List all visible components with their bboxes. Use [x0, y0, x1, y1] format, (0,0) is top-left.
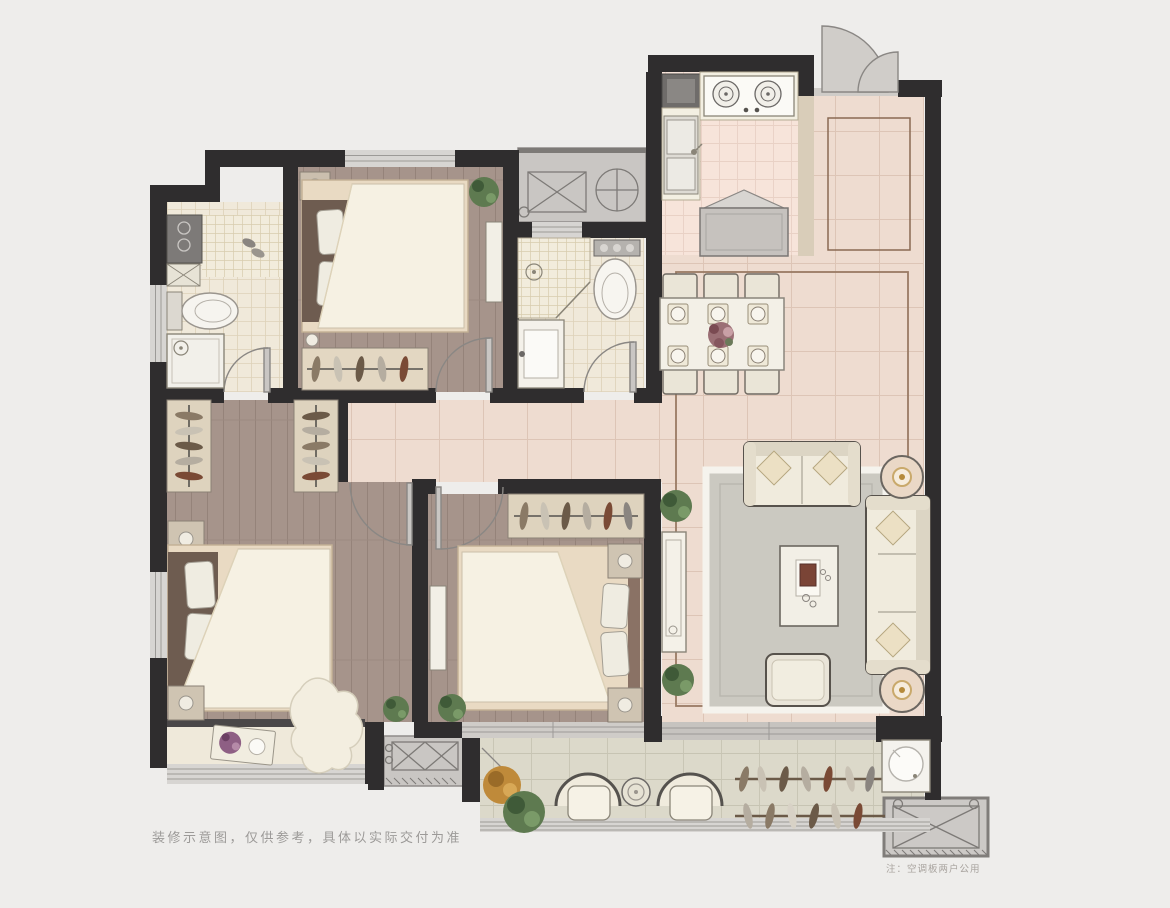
plant [503, 791, 545, 833]
wardrobe [167, 400, 211, 492]
ottoman [766, 654, 830, 706]
lamp-icon [306, 334, 318, 346]
bay-window-table [210, 725, 275, 765]
table-centerpiece-flowers [708, 322, 734, 348]
nightstand [306, 334, 318, 346]
dining-chair [704, 368, 738, 394]
pillow [184, 561, 215, 609]
tv-console [662, 532, 686, 652]
plant [383, 696, 409, 722]
storage-box [167, 264, 200, 286]
pillow [600, 631, 629, 677]
round-side-table [881, 456, 923, 498]
dining-chair [745, 274, 779, 300]
lamp-icon [618, 554, 632, 568]
laundry-basin [882, 740, 930, 792]
vanity-cabinet [167, 215, 202, 263]
kitchen-entry-divider [798, 96, 814, 256]
lamp-icon [618, 698, 632, 712]
pillow [600, 583, 629, 629]
dining-chair [663, 274, 697, 300]
dining-set [660, 274, 784, 394]
table-decor [800, 564, 816, 586]
ac-platform-top [518, 148, 646, 222]
bathroom-mid-window [532, 222, 582, 238]
ac-platform-bottom-middle [384, 736, 464, 786]
faucet-icon [519, 351, 525, 357]
wet-zone [202, 215, 283, 277]
dining-chair [663, 368, 697, 394]
plant [438, 694, 466, 722]
plant [660, 490, 692, 522]
bedroom-1-window [345, 150, 455, 167]
bedroom-2-window [150, 572, 167, 658]
round-side-table [880, 668, 924, 712]
plant [469, 177, 499, 207]
ac-shared-note-text: 注：空调板两户公用 [886, 861, 981, 875]
dining-chair [704, 274, 738, 300]
nightstand [608, 544, 642, 578]
bathroom-left-window [150, 285, 167, 362]
three-seat-sofa [866, 496, 930, 674]
plant [662, 664, 694, 696]
fridge [662, 74, 700, 108]
loveseat-sofa [744, 442, 860, 506]
wardrobe [508, 494, 644, 538]
nightstand [168, 686, 204, 720]
lamp-icon [179, 532, 193, 546]
desk [430, 586, 446, 670]
shower-stall [167, 334, 224, 388]
gas-stove [704, 76, 794, 116]
corridor-floor [348, 400, 678, 482]
bedroom-3-balcony-window [462, 722, 644, 738]
toilet [167, 292, 238, 330]
wardrobe [294, 400, 338, 492]
vanity-sink [518, 320, 564, 388]
desk [486, 222, 502, 302]
floor-plan-page: 装修示意图，仅供参考，具体以实际交付为准 注：空调板两户公用 [0, 0, 1170, 908]
double-bed [302, 180, 468, 332]
wardrobe [302, 348, 428, 390]
dining-chair [745, 368, 779, 394]
lamp-icon [179, 696, 193, 710]
round-table [622, 778, 650, 806]
floor-plan-drawing [0, 0, 1170, 908]
entry-foyer-floor [814, 96, 924, 262]
living-balcony-slider [662, 722, 876, 740]
main-entry-door [822, 26, 898, 92]
nightstand [608, 688, 642, 722]
disclaimer-text: 装修示意图，仅供参考，具体以实际交付为准 [152, 827, 462, 846]
coffee-table [780, 546, 838, 626]
double-sink [664, 116, 702, 194]
